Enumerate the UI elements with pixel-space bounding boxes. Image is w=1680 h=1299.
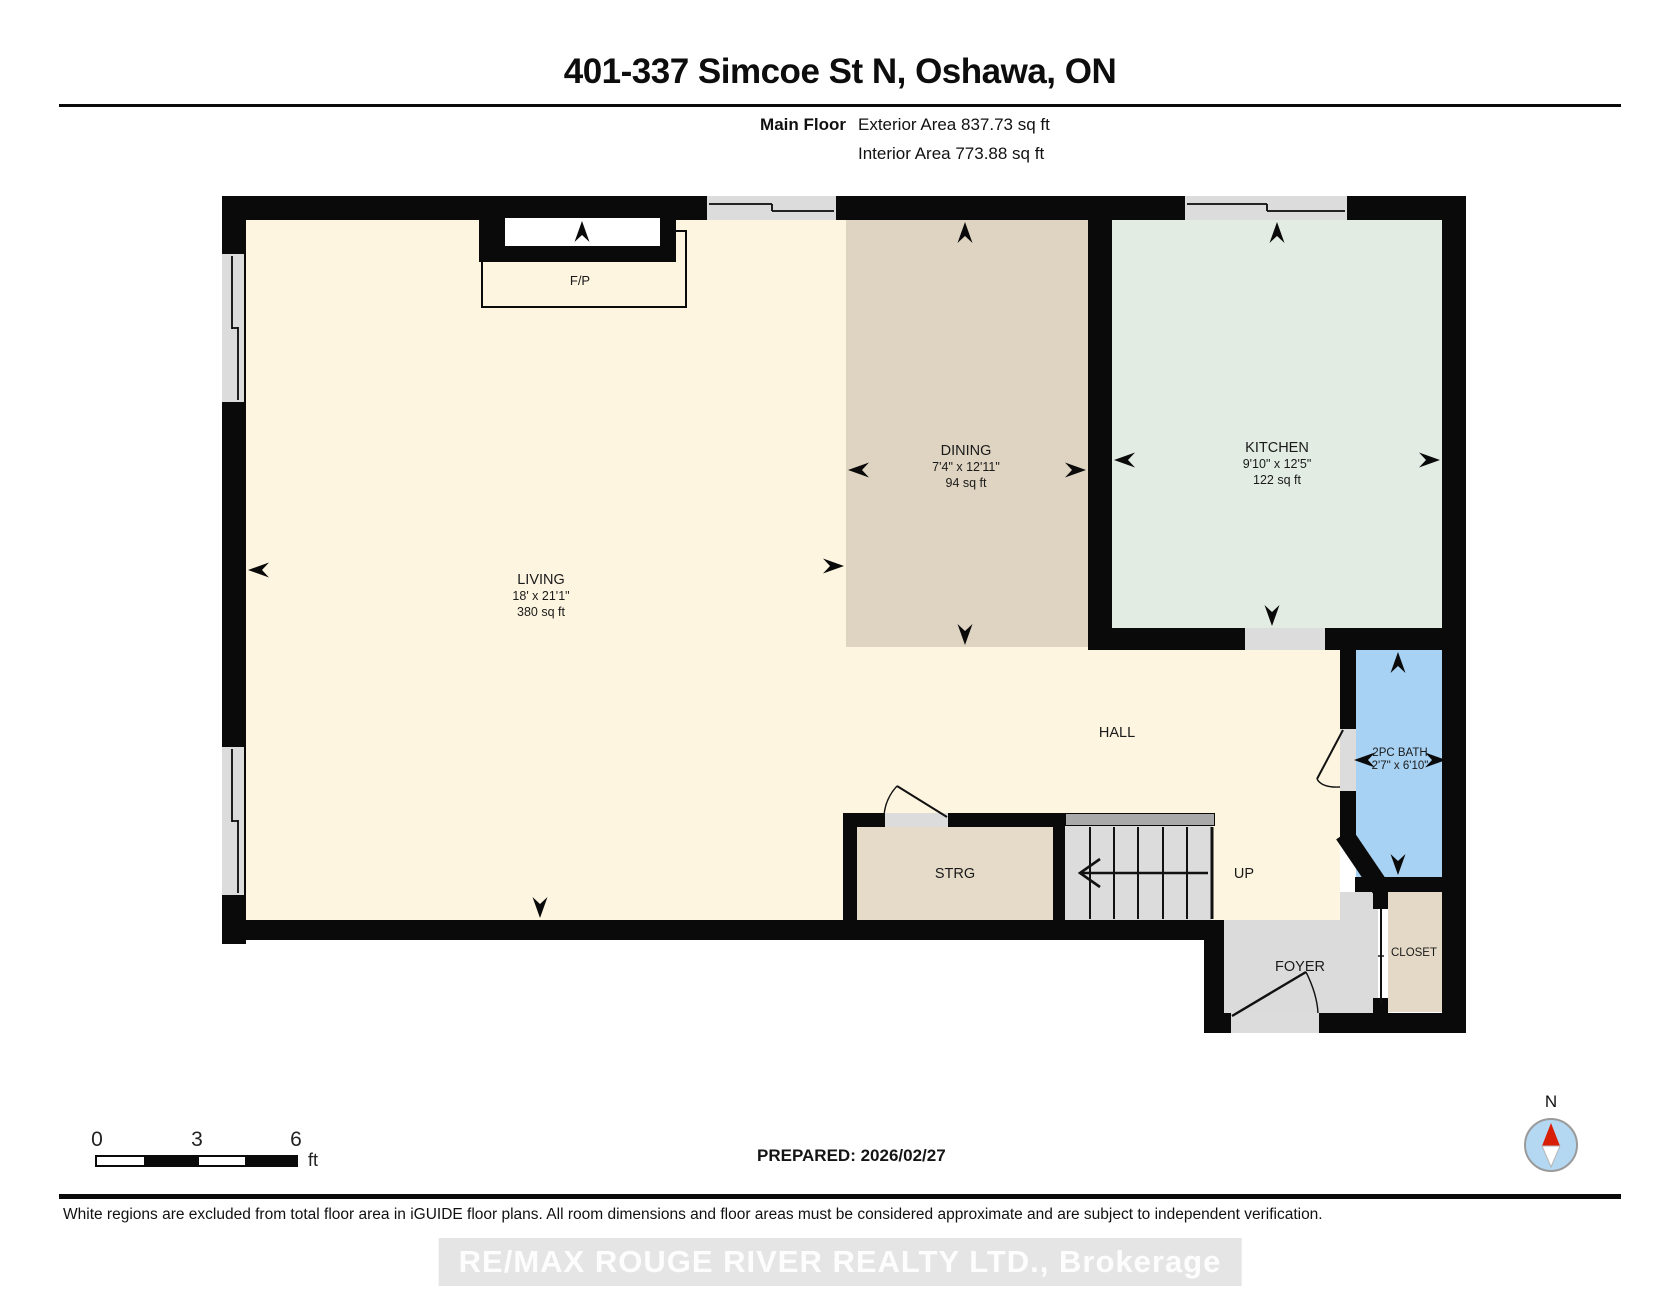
wall-bath-left-lower (1340, 791, 1356, 844)
floorplan-page: 401-337 Simcoe St N, Oshawa, ON Main Flo… (0, 0, 1680, 1299)
wall-bath-left-upper (1340, 628, 1356, 729)
scale-unit: ft (308, 1150, 318, 1171)
scale-end: 6 (290, 1128, 302, 1152)
scale-seg-4 (247, 1155, 298, 1167)
dining-dims: 7'4" x 12'11" (932, 459, 1000, 475)
wall-kitchen-hall-1 (1088, 628, 1245, 650)
compass-north-label: N (1545, 1092, 1557, 1112)
wall-bath-closet (1355, 877, 1466, 892)
brokerage-watermark: RE/MAX ROUGE RIVER REALTY LTD., Brokerag… (439, 1238, 1242, 1286)
dining-name: DINING (932, 443, 1000, 459)
kitchen-name: KITCHEN (1243, 440, 1312, 456)
storage-label: STRG (935, 866, 975, 882)
living-floor (246, 220, 846, 920)
wall-dining-kitchen (1088, 196, 1112, 647)
wall-storage-left (843, 813, 857, 920)
wall-storage-top-1 (843, 813, 885, 827)
wall-storage-right (1053, 813, 1065, 920)
living-area: 380 sq ft (512, 604, 569, 620)
window-top-living (707, 196, 836, 220)
foyer-label: FOYER (1275, 959, 1325, 975)
living-name: LIVING (512, 572, 569, 588)
door-slab-bath (1340, 729, 1356, 791)
wall-foyer-bottom-2 (1319, 1013, 1466, 1033)
stairs-up-label: UP (1234, 866, 1254, 882)
compass-circle (1524, 1118, 1578, 1172)
kitchen-dims: 9'10" x 12'5" (1243, 456, 1312, 472)
stairs-landing-bar (1065, 813, 1215, 826)
wall-storage-top-2 (948, 813, 1065, 827)
window-top-kitchen (1185, 196, 1347, 220)
scale-seg-3 (197, 1155, 247, 1167)
kitchen-label: KITCHEN 9'10" x 12'5" 122 sq ft (1243, 440, 1312, 488)
scale-mid: 3 (191, 1128, 203, 1152)
bath-label: 2PC BATH 2'7" x 6'10" (1372, 747, 1429, 773)
opening-kitchen-hall (1245, 628, 1325, 650)
scale-start: 0 (91, 1128, 103, 1152)
wall-right (1442, 196, 1466, 1033)
door-closet (1378, 909, 1384, 1003)
scale-seg-2 (146, 1155, 197, 1167)
wall-foyer-bottom-1 (1204, 1013, 1231, 1033)
fireplace-inner (505, 218, 660, 246)
prepared-date: PREPARED: 2026/02/27 (757, 1146, 946, 1166)
living-dims: 18' x 21'1" (512, 588, 569, 604)
dining-area: 94 sq ft (932, 475, 1000, 491)
wall-bottom (222, 920, 1224, 940)
window-left-lower (222, 747, 244, 895)
kitchen-area: 122 sq ft (1243, 472, 1312, 488)
door-sill-storage (885, 813, 948, 827)
bath-dims: 2'7" x 6'10" (1372, 760, 1429, 773)
footer-disclaimer: White regions are excluded from total fl… (63, 1206, 1323, 1224)
compass-needle-north (1542, 1123, 1560, 1146)
footer-divider (59, 1194, 1621, 1199)
stairs-floor (1065, 826, 1212, 920)
wall-closet-stub-bot (1373, 998, 1388, 1013)
living-label: LIVING 18' x 21'1" 380 sq ft (512, 572, 569, 620)
bath-name: 2PC BATH (1372, 747, 1429, 760)
window-left-upper (222, 254, 244, 402)
floor-plan: LIVING 18' x 21'1" 380 sq ft DINING 7'4"… (0, 0, 1680, 1299)
hall-label: HALL (1099, 725, 1135, 741)
fireplace-label: F/P (570, 273, 590, 289)
kitchen-floor (1112, 220, 1442, 628)
scale-seg-1 (95, 1155, 146, 1167)
door-sill-entry (1231, 1013, 1319, 1033)
dining-floor (846, 220, 1088, 647)
compass-needle-south (1542, 1146, 1560, 1167)
closet-label: CLOSET (1391, 945, 1437, 961)
dining-label: DINING 7'4" x 12'11" 94 sq ft (932, 443, 1000, 491)
wall-closet-stub-top (1373, 892, 1388, 909)
compass-needle-icon (1526, 1120, 1576, 1170)
